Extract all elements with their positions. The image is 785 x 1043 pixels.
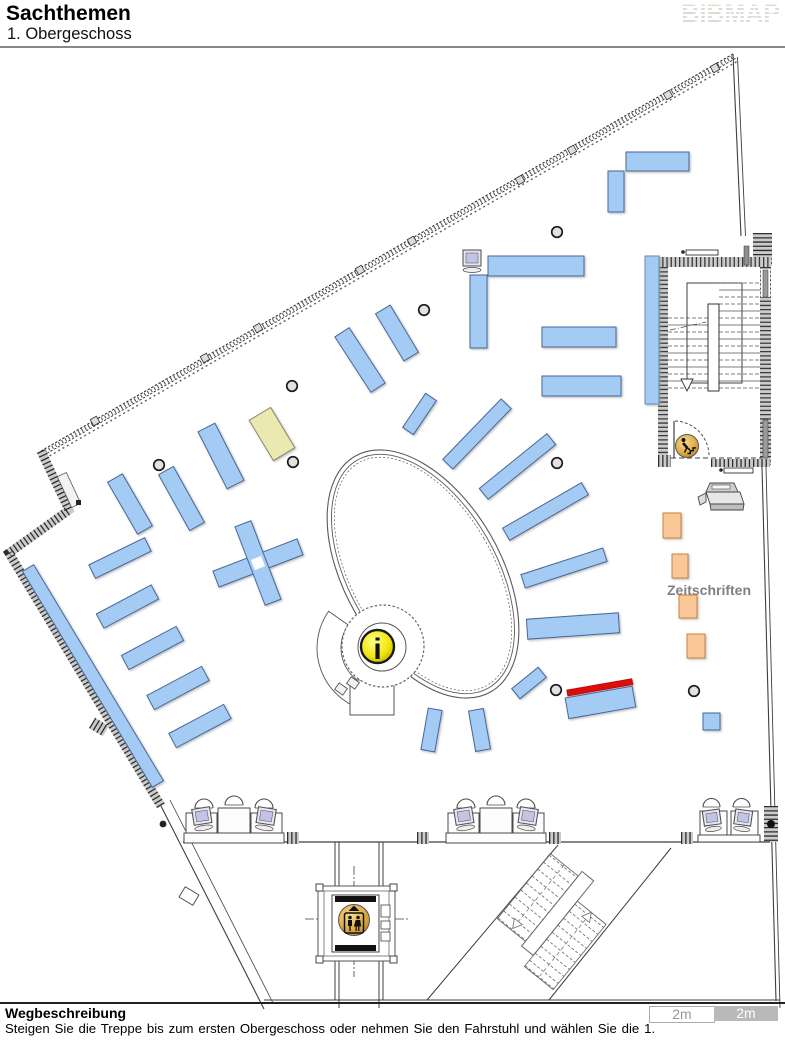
svg-text:Zeitschriften: Zeitschriften — [667, 582, 751, 598]
svg-text:i: i — [373, 633, 381, 666]
